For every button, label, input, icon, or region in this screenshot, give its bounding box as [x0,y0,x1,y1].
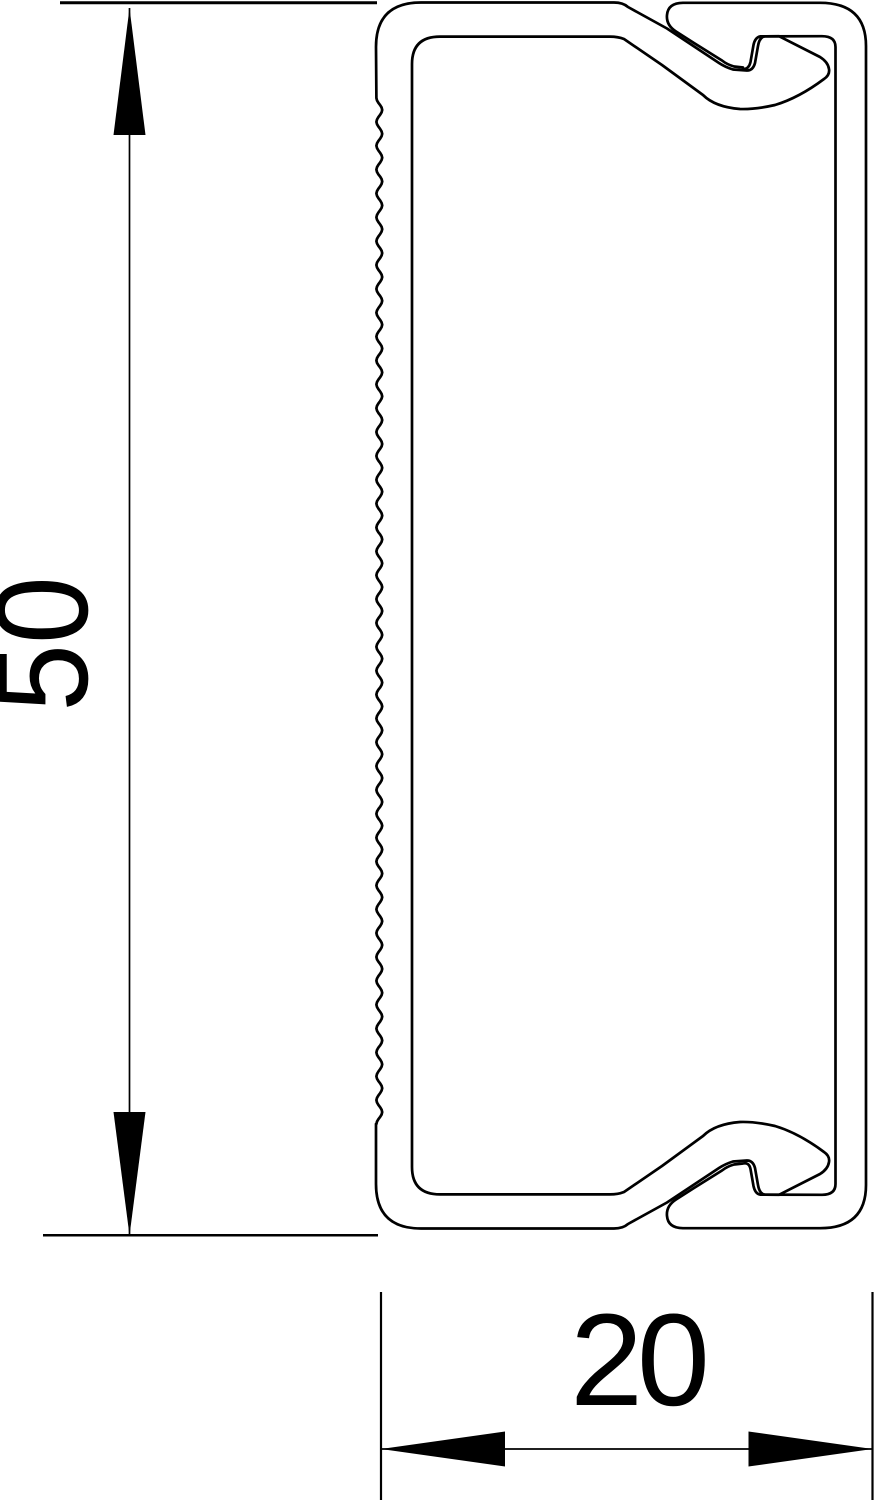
svg-text:50: 50 [0,576,115,712]
svg-text:20: 20 [570,1286,705,1433]
